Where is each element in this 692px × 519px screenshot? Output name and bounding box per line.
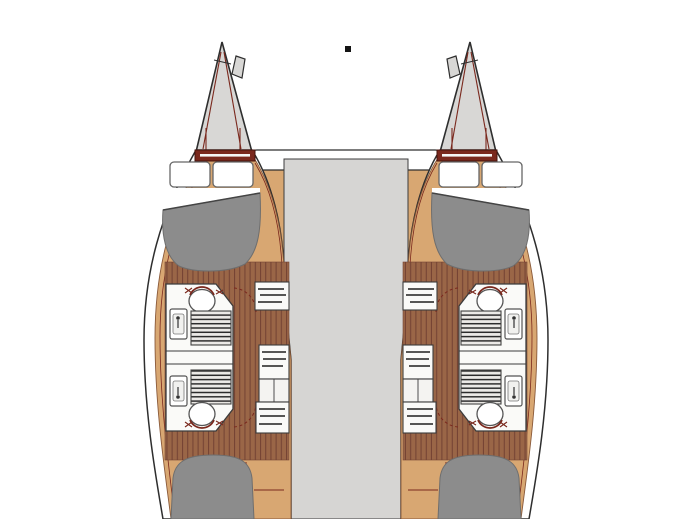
floor-plan-canvas: [0, 0, 692, 519]
aft-head-toilet: [189, 403, 215, 426]
bridge-deck-saloon: [284, 159, 408, 519]
foredeck-hatch-slit: [200, 154, 250, 157]
aft-shower-grate: [191, 370, 231, 404]
sink-faucet: [176, 395, 180, 399]
pillow: [213, 162, 253, 187]
pillow: [170, 162, 210, 187]
wardrobe-shelves: [255, 282, 289, 310]
aft-double-berth: [171, 455, 254, 519]
forward-head-toilet: [189, 290, 215, 313]
wardrobe-shelves: [259, 345, 289, 379]
catamaran-floor-plan: [0, 0, 692, 519]
mast-marker: [345, 46, 351, 52]
wardrobe-shelves: [256, 402, 289, 433]
forward-shower-grate: [191, 311, 231, 345]
sink-faucet: [176, 316, 180, 320]
